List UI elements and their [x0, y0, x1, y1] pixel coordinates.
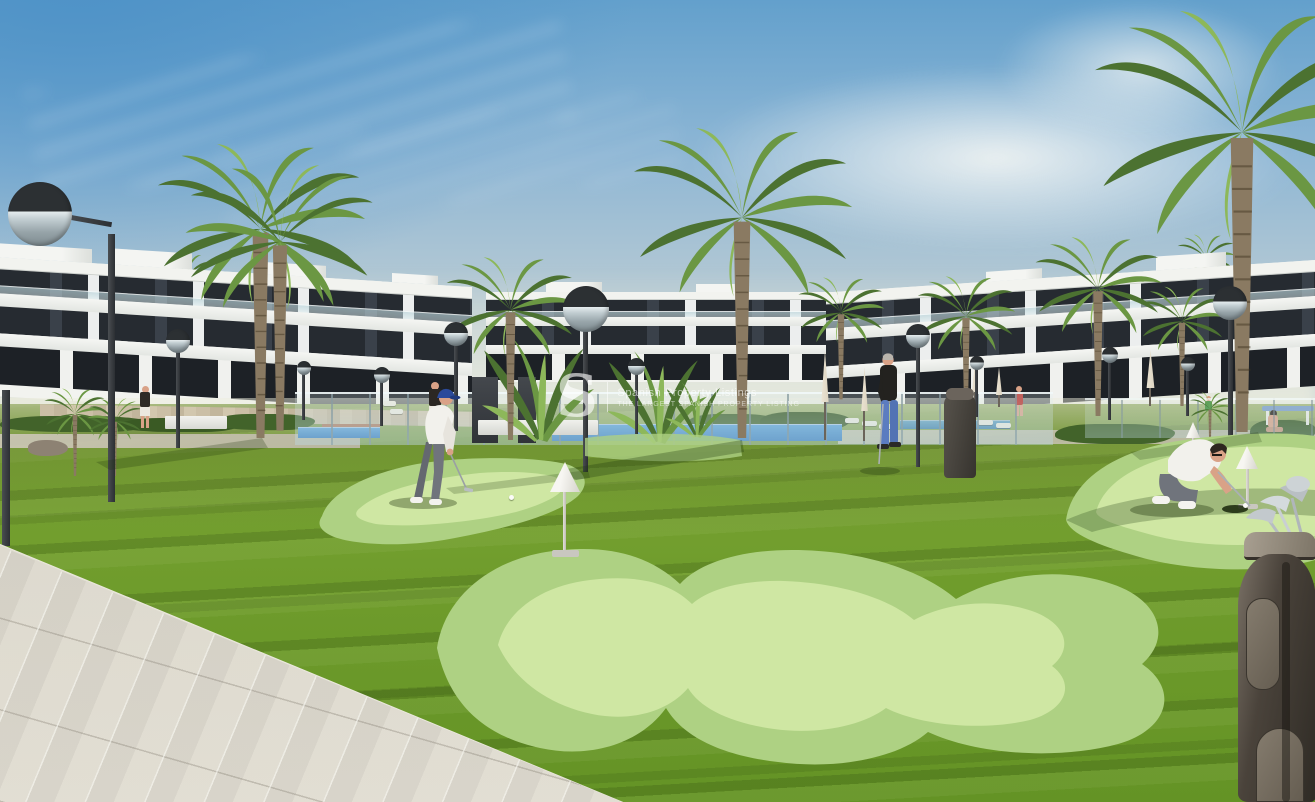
bag-pocket: [1256, 728, 1304, 802]
golf-bag-standing: [942, 388, 980, 480]
golfer-putting: [393, 372, 483, 512]
bag-pocket: [1246, 598, 1280, 690]
golfer-standing: [866, 352, 912, 478]
golf-bag-foreground: [1232, 470, 1315, 802]
person-standing-distant: [138, 386, 152, 428]
cone-marker-large: [549, 462, 581, 558]
watermark-divider: [607, 382, 609, 412]
watermark: S Spanish Property Listings THE LARGEST …: [556, 368, 826, 426]
bag-strap: [1282, 562, 1290, 802]
watermark-title: Spanish Property Listings: [617, 387, 799, 399]
property-render-scene: S Spanish Property Listings THE LARGEST …: [0, 0, 1315, 802]
watermark-subtitle: THE LARGEST SPANISH PROPERTY LISTING: [617, 401, 799, 408]
watermark-logo: S: [556, 372, 598, 421]
golf-ball: [509, 495, 514, 500]
